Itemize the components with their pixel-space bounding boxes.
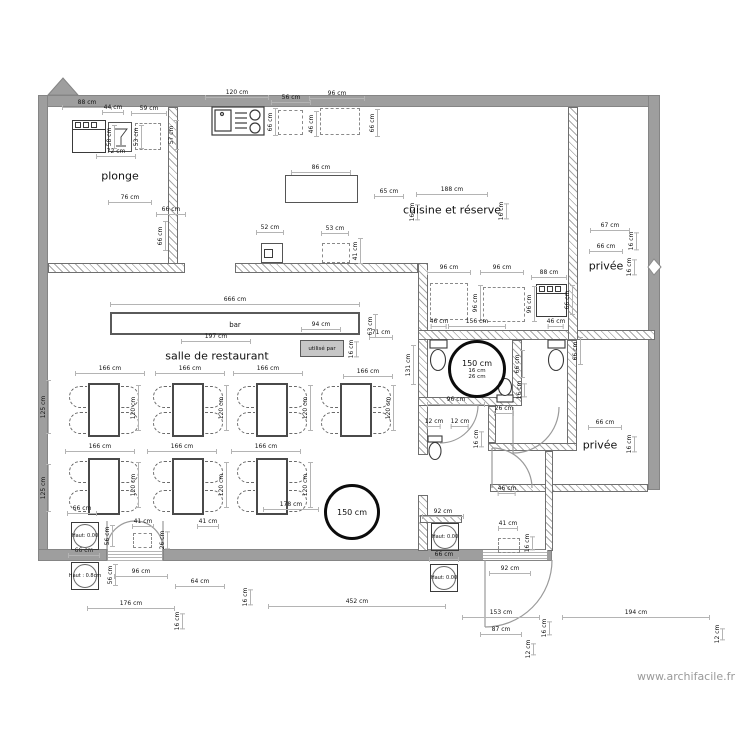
dimension-label: 16 cm (349, 340, 357, 359)
dimension-label: 66 cm (565, 285, 573, 315)
room-label: privée (589, 260, 624, 273)
dimension-label: 71 cm (369, 330, 393, 338)
dimension-label: 96 cm (114, 569, 168, 577)
dimension-label: 59 cm (131, 106, 167, 114)
dimension-label: 125 cm (41, 464, 49, 512)
elevation-marker: Haut: 0.00 (431, 523, 459, 551)
dimension-label: 120 cm (219, 462, 227, 508)
dimension-label: 65 cm (374, 189, 404, 197)
dimension-label: 53 cm (134, 125, 142, 149)
door-arc (492, 448, 532, 488)
dimension-label: 56 cm (271, 95, 311, 103)
dimension-label: 666 cm (110, 297, 360, 305)
dimension-label: 66 cm (588, 420, 622, 428)
dimension-label: 166 cm (155, 366, 225, 374)
dimension-label: 92 cm (422, 509, 464, 517)
dimension-label: 16 cm (542, 619, 550, 638)
dimension-label: 16 cm (175, 612, 183, 631)
dimension-label: 67 cm (590, 223, 630, 231)
dimension-label: 16 cm (243, 588, 251, 607)
clearance-circle: 150 cm (324, 484, 380, 540)
room-label: bar (229, 321, 241, 329)
clearance-circle: 150 cm16 cm26 cm (448, 340, 506, 398)
dimension-label: 66 cm (573, 337, 581, 365)
dimension-label: 96 cm (309, 91, 365, 99)
dimension-label: 86 cm (291, 165, 351, 173)
dimension-label: 12 cm (715, 625, 723, 644)
dimension-label: 96 cm (527, 286, 535, 322)
dimension-label: 120 cm (386, 385, 394, 431)
dimension-label: 53 cm (321, 226, 349, 234)
room-label: cuisine et réserve (403, 204, 501, 217)
toilet-icon (430, 340, 447, 371)
archifacile-watermark: www.archifacile.fr (637, 670, 735, 683)
sink-hob-unit (212, 107, 264, 135)
room-label: privée (583, 439, 618, 452)
dimension-label: 153 cm (462, 610, 540, 618)
dimension-label: 166 cm (233, 366, 303, 374)
dimension-label: 66 cm (429, 552, 459, 560)
dimension-label: 188 cm (416, 187, 488, 195)
toilet-icon (428, 436, 442, 460)
dimension-label: 66 cm (589, 244, 623, 252)
dimension-label: 46 cm (498, 486, 517, 494)
dimension-label: 26 cm (160, 531, 168, 550)
dimension-label: 96 cm (480, 265, 524, 273)
dimension-label: 41 cm (498, 521, 518, 529)
dimension-label: 56 cm (105, 525, 113, 547)
elevation-marker: Haut : 0.8cm (71, 562, 99, 590)
room-label: plonge (101, 170, 139, 183)
dimension-label: 452 cm (268, 599, 446, 607)
dimension-label: 96 cm (427, 265, 471, 273)
dimension-label: 194 cm (562, 610, 710, 618)
dimension-label: 16 cm (627, 258, 635, 277)
dimension-label: 46 cm (547, 319, 566, 327)
elevation-marker: Haut: 0.00 (71, 522, 99, 550)
floor-plan: utilisé par (0, 0, 750, 750)
door-arc (513, 407, 559, 453)
dimension-label: 66 cm (158, 221, 166, 251)
dimension-label: 120 cm (131, 385, 139, 431)
window-marker-icon (648, 259, 661, 275)
dimension-label: 176 cm (87, 601, 175, 609)
dimension-label: 76 cm (108, 195, 152, 203)
dimension-label: 16 cm (525, 534, 533, 553)
dimension-label: 94 cm (301, 322, 341, 330)
corner-spike (48, 78, 78, 95)
dimension-label: 46 cm (430, 319, 449, 327)
dimension-label: 58 cm (107, 125, 115, 149)
dimension-label: 12 cm (425, 419, 444, 427)
dimension-label: 166 cm (231, 444, 301, 452)
toilet-icon (548, 340, 565, 371)
dimension-label: 197 cm (181, 334, 251, 342)
dimension-label: 96 cm (473, 285, 481, 321)
dimension-label: 120 cm (205, 90, 269, 98)
dimension-label: 156 cm (448, 319, 506, 327)
dimension-label: 41 cm (353, 238, 361, 264)
dimension-label: 125 cm (41, 380, 49, 434)
dimension-label: 52 cm (256, 225, 284, 233)
dimension-label: 16 cm (517, 381, 525, 400)
dimension-label: 96 cm (427, 397, 485, 405)
dimension-label: 120 cm (219, 385, 227, 431)
dimension-label: 46 cm (309, 111, 317, 137)
dimension-label: 66 cm (515, 350, 523, 378)
dimension-label: 166 cm (65, 444, 135, 452)
dimension-label: 120 cm (131, 462, 139, 508)
dimension-label: 131 cm (406, 345, 414, 385)
dimension-label: 66 cm (156, 207, 186, 215)
dimension-label: 12 cm (451, 419, 470, 427)
dimension-label: 166 cm (75, 366, 145, 374)
dimension-label: 72 cm (96, 149, 136, 157)
dimension-label: 16 cm (629, 232, 637, 251)
dimension-label: 16 cm (474, 430, 482, 449)
dimension-label: 16 cm (627, 435, 635, 454)
dimension-label: 12 cm (526, 640, 534, 659)
dimension-label: 26 cm (494, 406, 514, 414)
elevation-marker: Haut: 0.00 (430, 564, 458, 592)
dimension-label: 66 cm (67, 506, 97, 514)
dimension-label: 88 cm (531, 270, 567, 278)
dimension-label: 64 cm (175, 579, 225, 587)
dimension-label: 66 cm (370, 109, 378, 137)
dimension-label: 92 cm (489, 566, 531, 574)
dimension-label: 41 cm (197, 519, 219, 527)
dimension-label: 41 cm (132, 519, 154, 527)
wine-glass-icon (115, 129, 127, 146)
dimension-label: 66 cm (268, 108, 276, 136)
dimension-label: 120 cm (303, 385, 311, 431)
dimension-label: 166 cm (147, 444, 217, 452)
room-label: salle de restaurant (165, 350, 268, 363)
dimension-label: 166 cm (343, 369, 393, 377)
dimension-label: 44 cm (102, 105, 124, 113)
dimension-label: 178 cm (263, 502, 319, 510)
dimension-label: 57 cm (169, 120, 177, 150)
dimension-label: 87 cm (480, 627, 522, 635)
